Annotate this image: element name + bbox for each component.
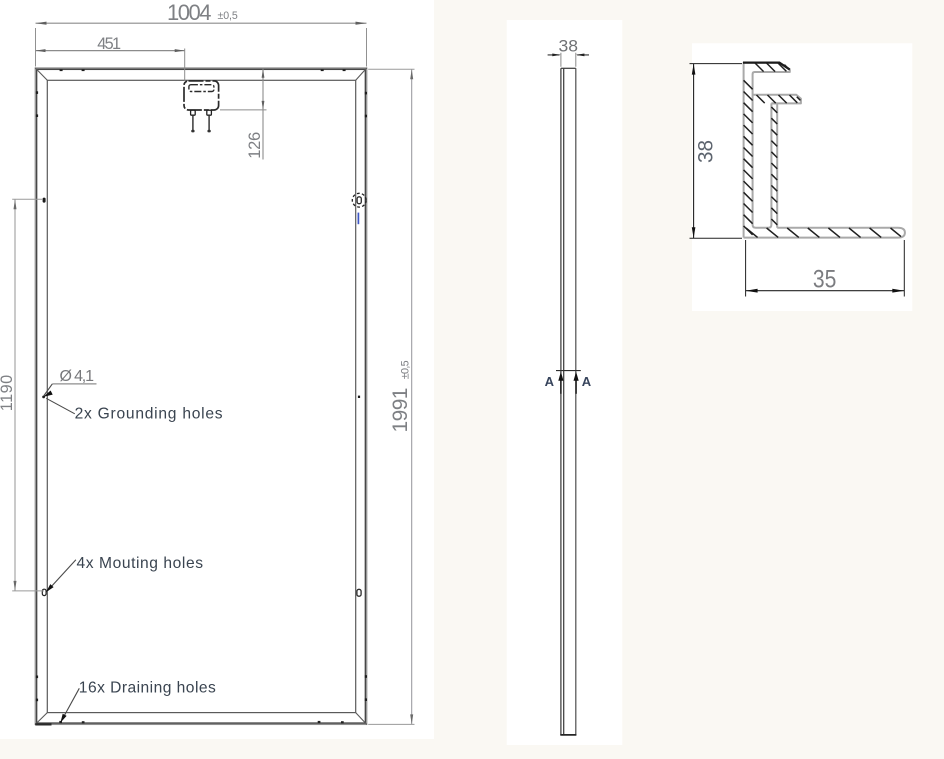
svg-text:35: 35 [813, 266, 837, 294]
svg-text:A: A [545, 374, 555, 389]
svg-text:126: 126 [246, 132, 264, 159]
svg-text:16x Draining holes: 16x Draining holes [79, 680, 216, 697]
svg-text:Ø 4,1: Ø 4,1 [60, 368, 95, 385]
svg-text:A: A [582, 374, 592, 389]
svg-text:±0,5: ±0,5 [399, 360, 411, 379]
svg-text:38: 38 [559, 37, 579, 55]
svg-text:±0,5: ±0,5 [218, 10, 238, 22]
svg-text:1190: 1190 [0, 375, 16, 412]
svg-text:451: 451 [97, 35, 121, 53]
svg-text:38: 38 [695, 140, 718, 163]
svg-text:4x Mouting holes: 4x Mouting holes [77, 555, 204, 572]
svg-text:2x Grounding holes: 2x Grounding holes [75, 406, 223, 423]
svg-text:1991: 1991 [389, 388, 412, 433]
svg-text:1004: 1004 [167, 0, 212, 25]
